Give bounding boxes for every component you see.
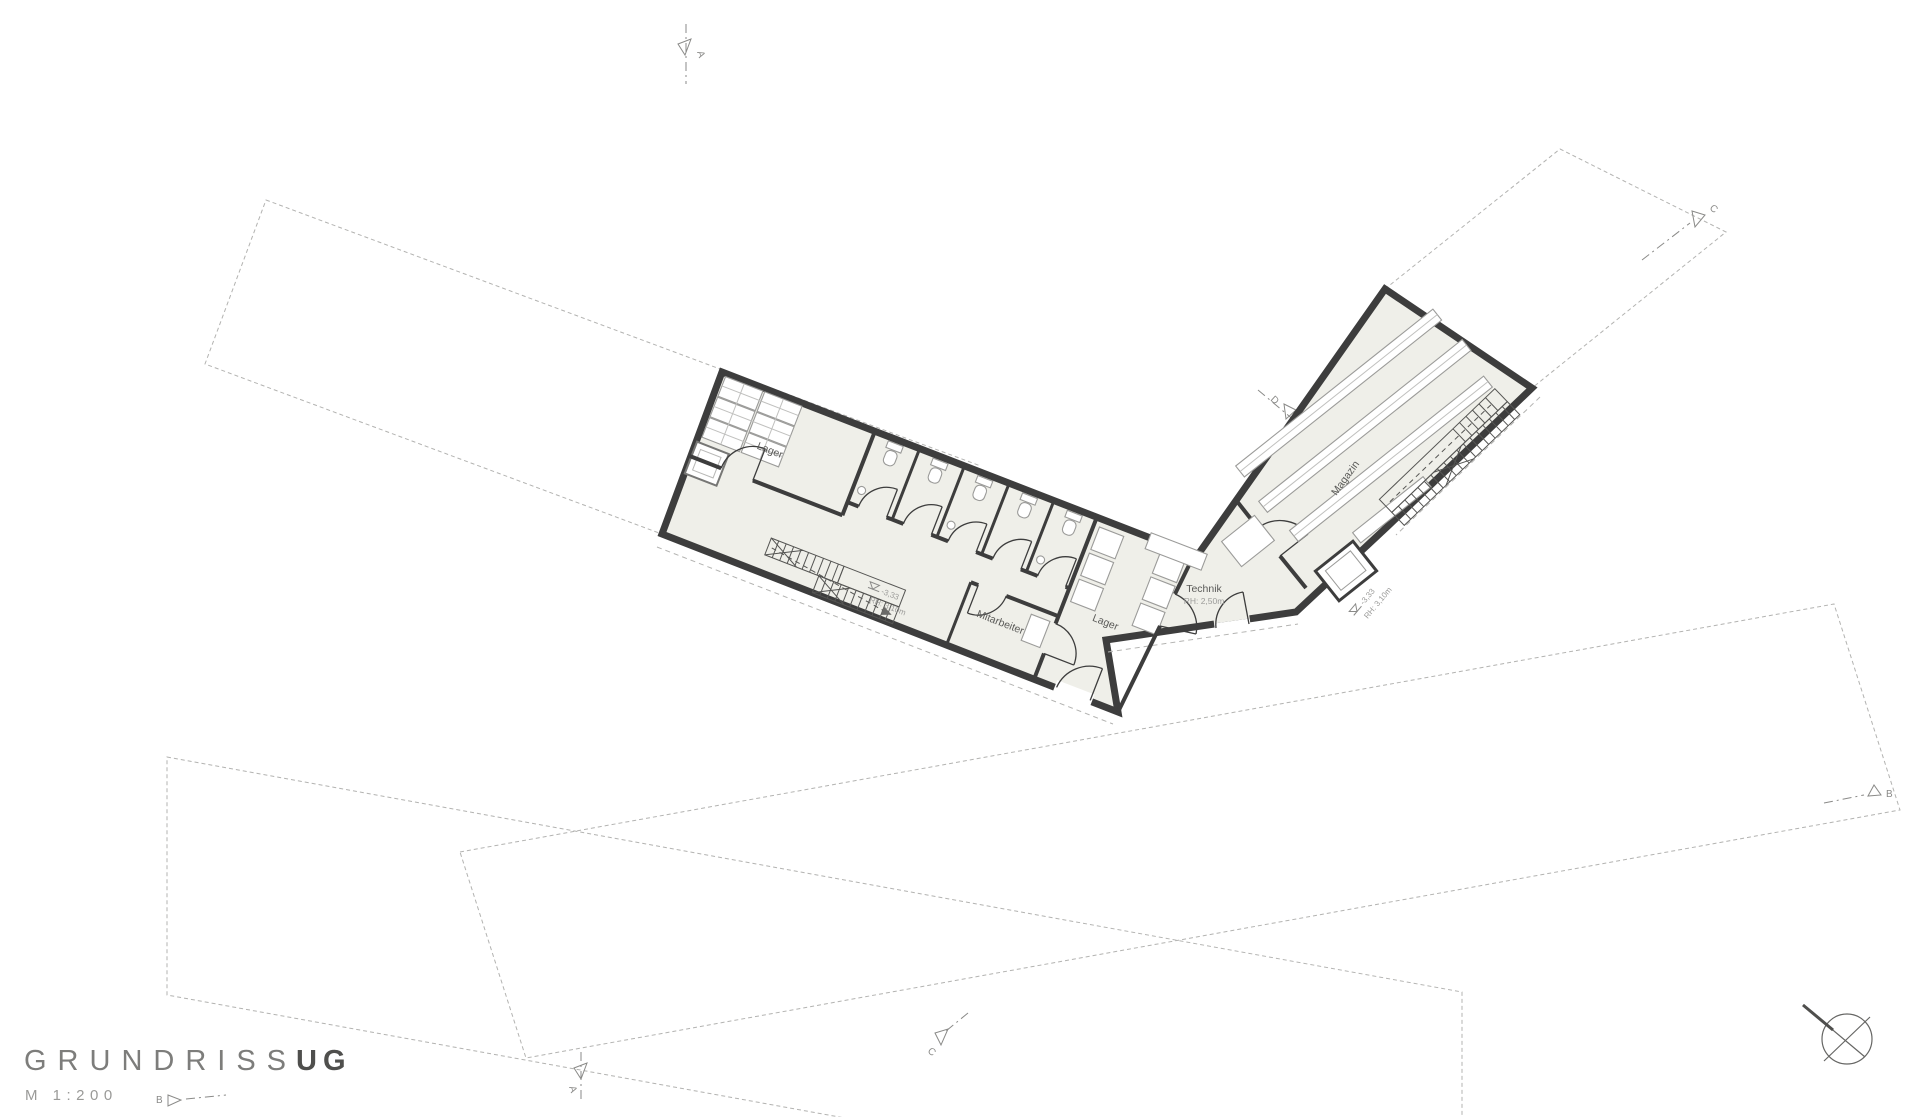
section-marker-a-bottom: A: [566, 1052, 587, 1100]
floor-plan-canvas: A A B B C C D: [0, 0, 1920, 1117]
upper-floor-outline-south-a: [167, 757, 1462, 1117]
north-arrow-icon: [1803, 1005, 1872, 1064]
section-triangle-icon: [678, 39, 691, 55]
room-label-technik: Technik: [1186, 583, 1222, 595]
page-title-floor: UG: [296, 1045, 352, 1077]
section-letter-b: B: [1886, 789, 1893, 800]
title-block: GRUNDRISS UG M 1:200: [24, 1045, 352, 1104]
drawing-scale: M 1:200: [25, 1087, 118, 1104]
page-title: GRUNDRISS: [24, 1045, 297, 1077]
section-triangle-icon: [1692, 211, 1705, 227]
section-marker-b-right: B: [1824, 785, 1893, 803]
level-triangle-icon: [1349, 602, 1361, 615]
section-letter-b: B: [156, 1095, 163, 1106]
section-letter-d: D: [1268, 394, 1281, 407]
drawing-sheet: A A B B C C D: [0, 0, 1920, 1117]
section-letter-a: A: [566, 1085, 579, 1095]
section-triangle-icon: [935, 1029, 948, 1045]
section-marker-b-left: B: [156, 1095, 226, 1106]
section-marker-c-top: C: [1642, 203, 1720, 260]
section-marker-a-top: A: [678, 24, 707, 84]
section-triangle-icon: [1868, 785, 1881, 796]
section-marker-c-bottom: C: [925, 1013, 968, 1059]
section-letter-c: C: [925, 1046, 937, 1059]
room-height-technik: RH: 2,50m: [1184, 596, 1225, 606]
upper-floor-outline-south-b: [460, 604, 1900, 1058]
section-triangle-icon: [168, 1095, 181, 1106]
section-letter-a: A: [694, 50, 707, 60]
section-letter-c: C: [1707, 203, 1719, 216]
